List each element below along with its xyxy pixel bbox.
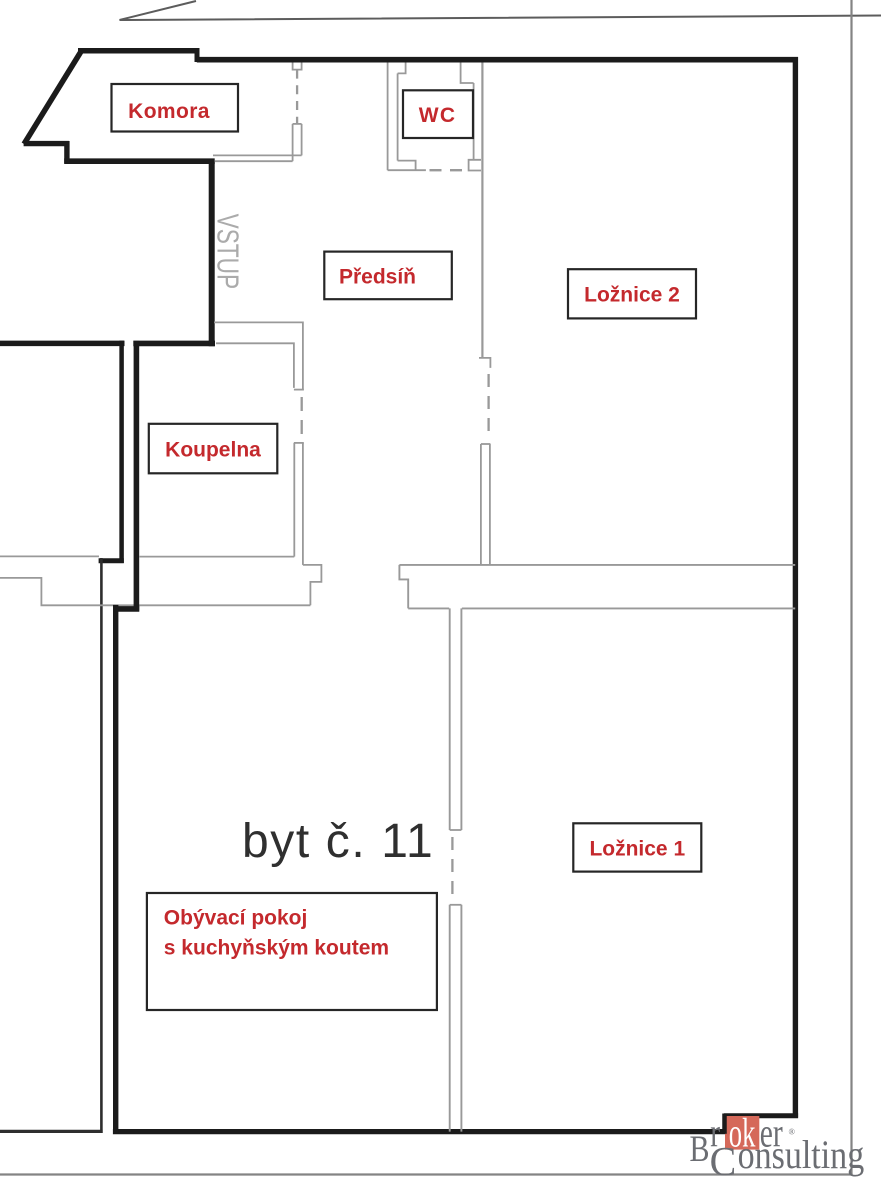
svg-text:Koupelna: Koupelna: [165, 439, 261, 462]
svg-text:B: B: [690, 1129, 710, 1170]
svg-text:Předsíň: Předsíň: [339, 266, 416, 289]
svg-text:byt č. 11: byt č. 11: [242, 815, 434, 868]
svg-text:WC: WC: [419, 104, 456, 127]
svg-text:Obývací pokoj: Obývací pokoj: [164, 907, 308, 930]
svg-text:Ložnice 1: Ložnice 1: [589, 838, 685, 861]
svg-text:s kuchyňským koutem: s kuchyňským koutem: [164, 937, 389, 960]
svg-text:C: C: [710, 1138, 737, 1184]
svg-text:Ložnice 2: Ložnice 2: [584, 284, 680, 307]
svg-text:VSTUP: VSTUP: [211, 214, 246, 290]
svg-text:onsulting: onsulting: [738, 1132, 865, 1177]
svg-text:Komora: Komora: [128, 100, 210, 123]
